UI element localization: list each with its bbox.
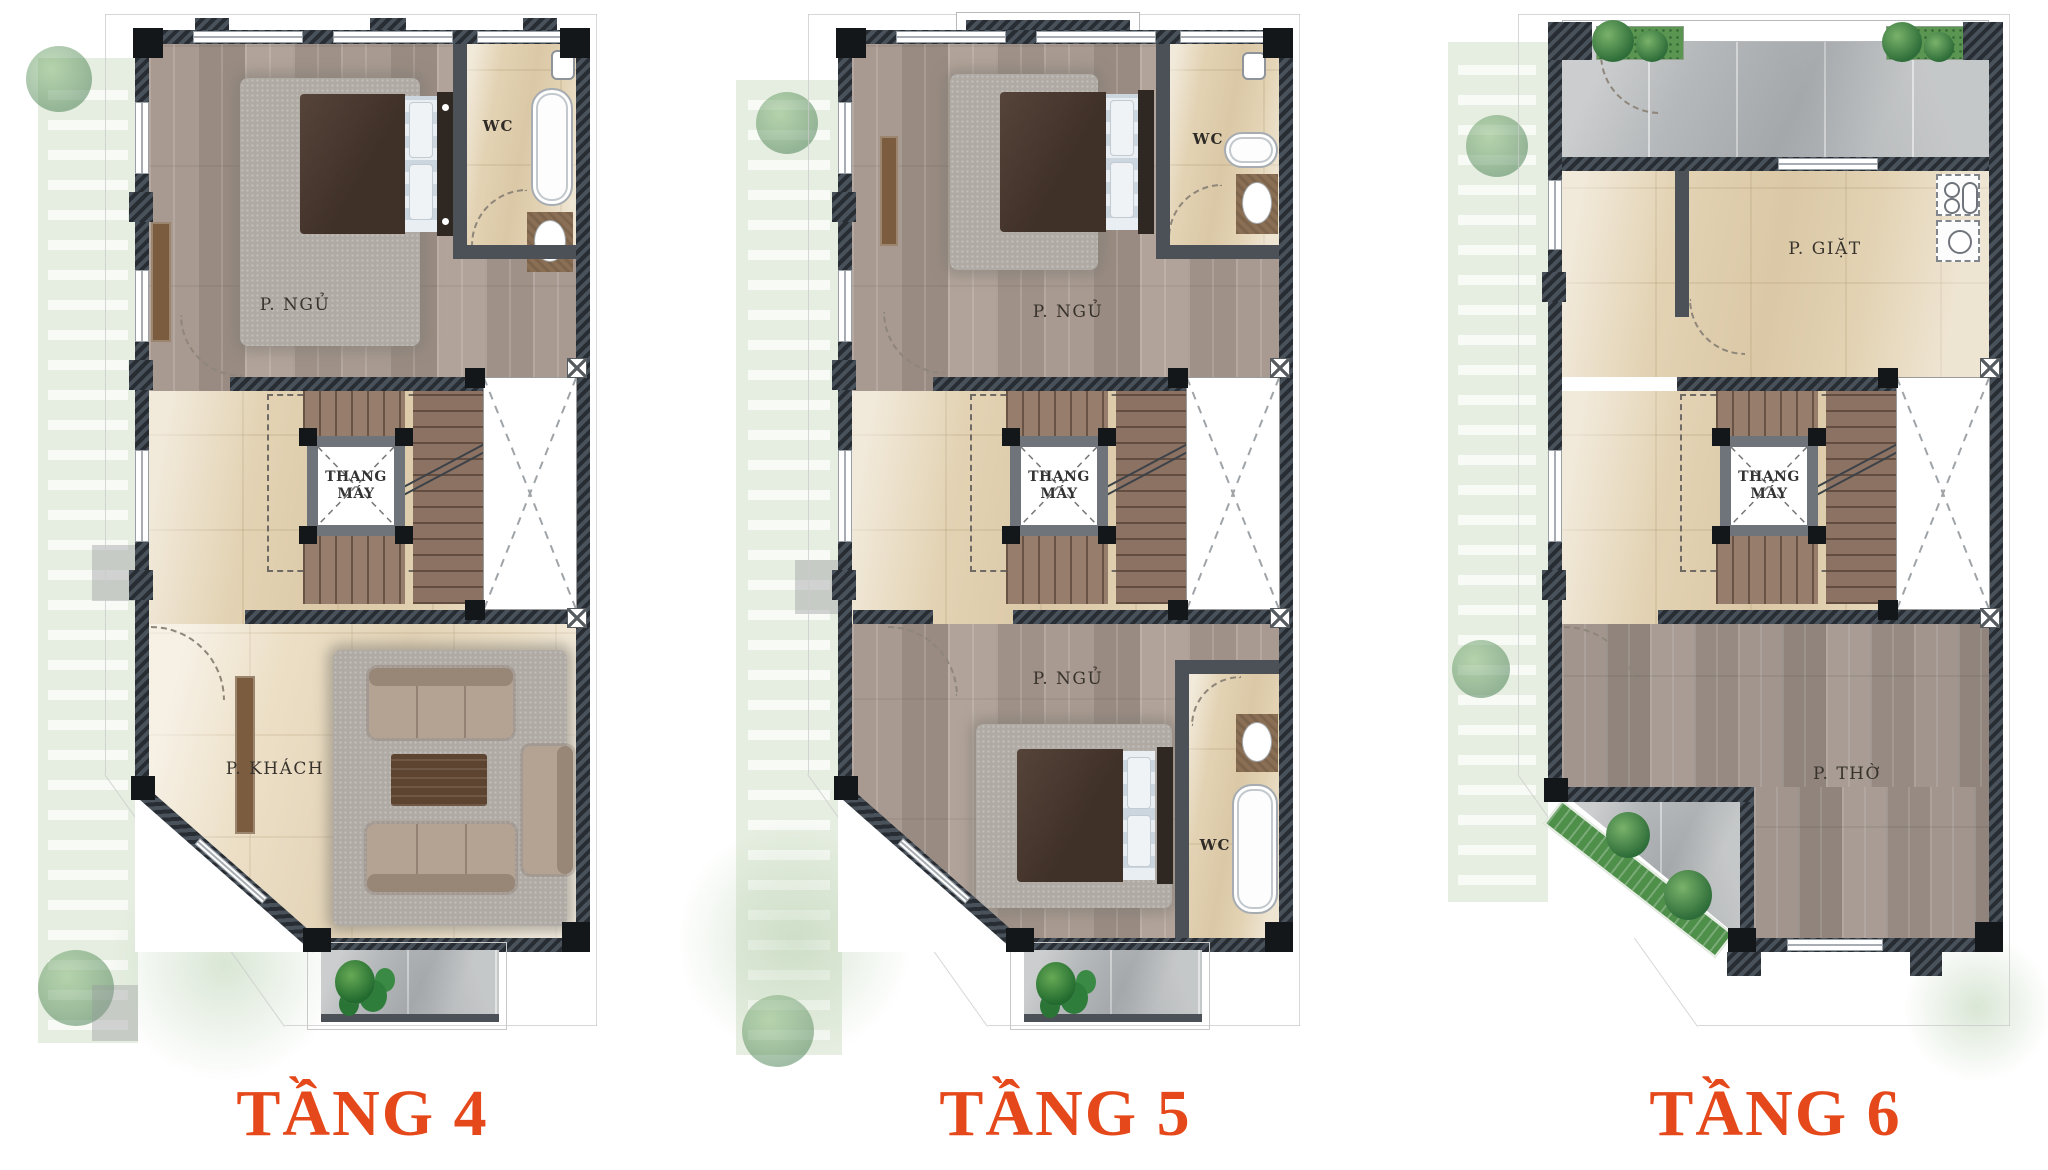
planter-tree [1636, 30, 1668, 62]
bathtub-icon [531, 88, 573, 206]
partition-wall [230, 377, 483, 391]
corner-block [1963, 22, 2003, 60]
elevator-label: THANG MÁY [1734, 469, 1804, 504]
tree [26, 46, 92, 112]
elevator-label: THANG MÁY [1024, 469, 1094, 504]
corner-block [1168, 600, 1188, 620]
armchair [523, 746, 573, 874]
partition-wall [453, 44, 467, 259]
property-outline [1698, 1025, 2010, 1026]
elevator-shaft: THANG MÁY [307, 436, 405, 536]
property-outline [105, 14, 597, 15]
bed-pillow [1110, 100, 1134, 156]
floor-plan-sheet: { "figure": {"type": "floor-plan-sheet",… [0, 0, 2048, 1170]
partition-wall [1013, 610, 1279, 624]
washer-control-icon [1944, 182, 1960, 198]
sofa [367, 824, 515, 892]
tie-column-icon [567, 358, 587, 378]
washer-control-icon [1944, 198, 1960, 214]
corner-block [1728, 928, 1756, 952]
tie-column-icon [1270, 358, 1290, 378]
partition-wall [1175, 660, 1279, 674]
bedside-lamp-icon [442, 104, 449, 111]
window [477, 31, 563, 43]
worship-floor [1754, 787, 1989, 938]
partition-wall [1156, 245, 1279, 259]
pilaster [195, 18, 229, 30]
pilaster [832, 570, 856, 600]
bed-pillow [1110, 162, 1134, 218]
void-x-marker [484, 378, 576, 609]
corner-block [560, 28, 590, 58]
tie-column-icon [1980, 358, 2000, 378]
floor-title-tang-5: TẦNG 5 [838, 1076, 1293, 1152]
corner-block [465, 368, 485, 388]
parking-slots-texture [1458, 55, 1536, 885]
floor-title-tang-6: TẦNG 6 [1548, 1076, 2003, 1152]
column-block [299, 526, 317, 544]
partition-wall [1675, 171, 1689, 317]
void-shaft [1896, 377, 1990, 610]
elevator-shaft: THANG MÁY [1010, 436, 1108, 536]
column-block [1808, 428, 1826, 446]
pilaster [129, 570, 153, 600]
notch-wall [1548, 787, 1754, 802]
corner-block [465, 600, 485, 620]
sofa-cushion-line [465, 824, 467, 874]
floor-plan-tang-6: THANG MÁY P. GIẶT P. THỜ [1548, 12, 2003, 1057]
pilaster [1542, 570, 1566, 600]
partition-wall [1175, 660, 1189, 938]
washing-machine-icon [1936, 174, 1980, 216]
void-x-marker [1897, 378, 1989, 609]
bed-pillow [409, 102, 433, 158]
void-shaft [483, 377, 577, 610]
tie-column-icon [1980, 608, 2000, 628]
corner-block [303, 928, 331, 952]
planter-tree [1592, 20, 1634, 62]
sofa-cushion-line [464, 686, 466, 738]
corner-block [1006, 928, 1034, 952]
window [1548, 450, 1562, 542]
planter-tree [1664, 870, 1712, 920]
column-block [1808, 526, 1826, 544]
wall-bench [880, 136, 898, 246]
partition-wall [1658, 610, 1989, 624]
pilaster [832, 192, 856, 222]
corner-block [1878, 600, 1898, 620]
stair-flight [1006, 536, 1108, 604]
sofa-back [367, 874, 515, 892]
room-label-worship: P. THỜ [1747, 764, 1947, 784]
sink-icon [1242, 722, 1272, 762]
room-label-bedroom1: P. NGỦ [968, 302, 1168, 322]
pilaster [832, 360, 856, 390]
armchair-back [557, 746, 573, 874]
stair-flight [1826, 380, 1896, 604]
pilaster [1727, 952, 1761, 976]
corner-block [133, 28, 163, 58]
corner-block [1975, 922, 2003, 952]
corner-block [1168, 368, 1188, 388]
bedside-lamp-icon [442, 218, 449, 225]
balcony-plant [1036, 962, 1076, 1006]
tie-column-icon [567, 608, 587, 628]
left-wall [1548, 30, 1562, 787]
pilaster [129, 360, 153, 390]
sofa-cushion-line [416, 824, 418, 874]
sofa-cushion-line [416, 686, 418, 738]
pilaster [129, 192, 153, 222]
room-label-wc1: WC [1158, 130, 1258, 148]
floor-plan-tang-4: THANG MÁY P. NGỦ WC P. KHÁCH [135, 12, 590, 1057]
room-label-living: P. KHÁCH [175, 759, 375, 779]
window [333, 31, 453, 43]
property-outline [1518, 14, 1519, 774]
bed-pillow [409, 164, 433, 220]
washer-control-icon [1962, 182, 1978, 214]
column-block [1712, 526, 1730, 544]
corner-block [562, 922, 590, 952]
console-table [235, 676, 255, 834]
corner-block [1878, 368, 1898, 388]
property-outline [808, 14, 809, 774]
room-label-wc: WC [448, 117, 548, 135]
room-label-wc2: WC [1165, 836, 1265, 854]
void-x-marker [1187, 378, 1279, 609]
property-outline [2009, 14, 2010, 1026]
planter-tree [1606, 812, 1650, 858]
corner-block [1544, 778, 1568, 802]
stair-flight [1116, 380, 1186, 604]
window [135, 102, 149, 174]
planter-tree [1882, 22, 1922, 62]
balcony-edge [321, 1014, 499, 1022]
tree [1452, 640, 1510, 698]
window [1036, 31, 1156, 43]
wall-bench [151, 222, 171, 342]
window [1180, 31, 1266, 43]
planter-tree [1924, 32, 1954, 62]
property-outline [1518, 14, 2010, 15]
room-label-bedroom2: P. NGỦ [968, 669, 1168, 689]
dryer-icon [1936, 220, 1980, 262]
partition-wall [245, 610, 576, 624]
window [193, 31, 303, 43]
bed-pillow [1127, 815, 1151, 867]
room-label-bedroom: P. NGỦ [195, 295, 395, 315]
sink-icon [1242, 182, 1272, 224]
column-block [1002, 428, 1020, 446]
dryer-drum-icon [1948, 230, 1972, 254]
window [838, 450, 852, 542]
right-wall [1279, 30, 1293, 938]
partition-wall [1562, 157, 1989, 171]
window [838, 102, 852, 174]
corner-block [834, 776, 858, 800]
coffee-table [391, 754, 487, 806]
pilaster [1542, 272, 1566, 302]
window [1548, 180, 1562, 250]
bed-duvet [1017, 749, 1123, 882]
elevator-label: THANG MÁY [321, 469, 391, 504]
pilaster [370, 18, 406, 30]
column-block [299, 428, 317, 446]
window [135, 450, 149, 542]
partition-wall [933, 377, 1186, 391]
column-block [1098, 428, 1116, 446]
bed-duvet [1000, 92, 1106, 232]
bed-pillow [1127, 757, 1151, 809]
partition-wall [853, 610, 933, 624]
notch-wall [1740, 802, 1754, 938]
right-wall [1989, 30, 2003, 938]
window [838, 270, 852, 342]
floor-title-tang-4: TẦNG 4 [135, 1076, 590, 1152]
sofa-back [369, 668, 513, 686]
stair-flight [413, 380, 483, 604]
worship-floor [1562, 624, 1989, 787]
headboard [437, 92, 453, 236]
property-outline [105, 14, 106, 774]
property-outline [596, 14, 597, 1026]
column-block [395, 428, 413, 446]
pilaster [1910, 952, 1942, 976]
void-shaft [1186, 377, 1280, 610]
partition-wall [453, 245, 576, 259]
balcony-plant [335, 960, 375, 1004]
sofa [369, 668, 513, 738]
corner-block [1263, 28, 1293, 58]
corner-block [131, 776, 155, 800]
balcony-edge [1024, 1014, 1202, 1022]
window [1778, 158, 1878, 170]
partition-wall [1156, 44, 1170, 259]
laundry-floor [1562, 171, 1989, 377]
window [135, 270, 149, 342]
headboard [1138, 90, 1154, 234]
right-wall [576, 30, 590, 938]
tie-column-icon [1270, 608, 1290, 628]
window [896, 31, 1006, 43]
property-outline [1299, 14, 1300, 1026]
corner-block [1548, 22, 1592, 60]
corner-block [836, 28, 866, 58]
elevator-shaft: THANG MÁY [1720, 436, 1818, 536]
stair-flight [1716, 536, 1818, 604]
window [1787, 939, 1883, 951]
floor-plan-tang-5: THANG MÁY P. NGỦ WC P. NGỦ WC [838, 12, 1293, 1057]
corner-block [1265, 922, 1293, 952]
column-block [1002, 526, 1020, 544]
headboard [1157, 747, 1173, 884]
pilaster [523, 18, 557, 30]
column-block [1712, 428, 1730, 446]
room-label-laundry: P. GIẶT [1725, 239, 1925, 259]
bed-duvet [300, 94, 405, 234]
stair-flight [303, 536, 405, 604]
column-block [395, 526, 413, 544]
column-block [1098, 526, 1116, 544]
